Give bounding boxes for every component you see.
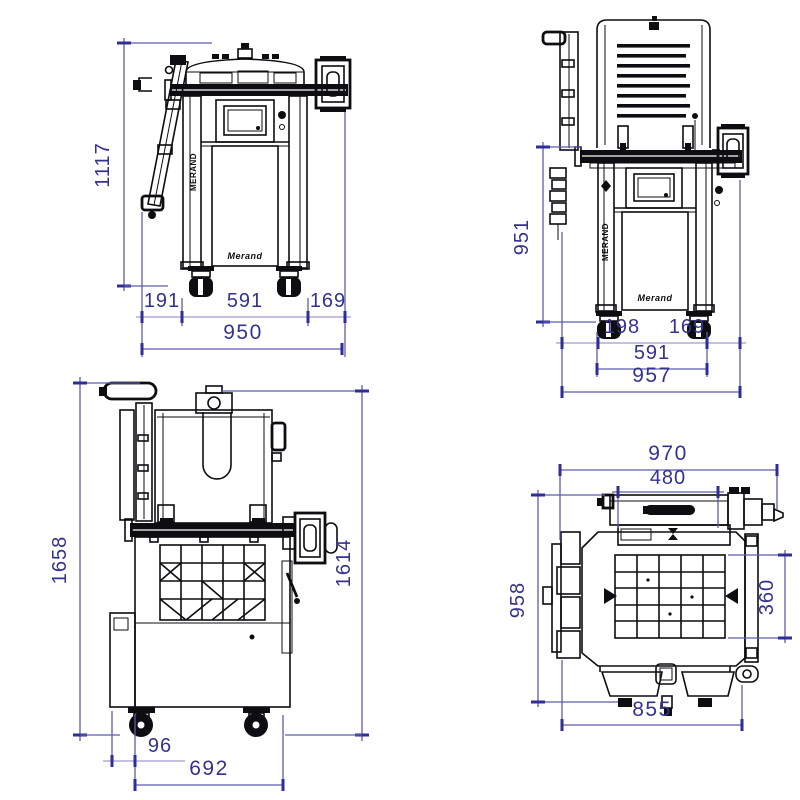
dim-label: 360 [756, 579, 778, 615]
motor-top [728, 487, 783, 529]
dim-label: 950 [223, 321, 263, 344]
hood-bar-top [618, 525, 730, 545]
dim-label: 591 [227, 290, 263, 312]
mast [99, 383, 156, 521]
top-view: 970 480 958 360 [440, 420, 800, 760]
right-pillar [289, 96, 307, 268]
front-view-open: Merand MERAND [400, 0, 800, 400]
dim-label: 480 [650, 467, 686, 489]
lever-arm [133, 55, 188, 219]
dim-label: 169 [669, 316, 705, 338]
front-view-closed: Merand MERAND [0, 0, 400, 365]
body-top [582, 532, 758, 666]
machine-top [543, 487, 783, 716]
dim-label: 1614 [333, 539, 355, 588]
dim-label: 958 [507, 582, 529, 618]
door-logo: Merand [227, 251, 262, 261]
dim-crossbar-width: 480 [612, 467, 724, 528]
dim-label: 951 [511, 219, 533, 255]
dim-label: 198 [604, 316, 640, 338]
side-view-open: 1658 1614 96 692 [0, 365, 400, 800]
dim-label: 970 [648, 442, 688, 465]
door [212, 146, 278, 266]
crossbar-top [597, 495, 728, 525]
divider-grid [615, 555, 725, 638]
caster-rear [243, 707, 270, 737]
dim-overall-height-open: 1658 [49, 377, 140, 741]
dim-label: 169 [310, 290, 346, 312]
caster-left [188, 266, 214, 297]
machine-side [99, 383, 337, 737]
front-panel [110, 613, 135, 707]
dim-label: 591 [634, 342, 670, 364]
hood-latch [649, 22, 659, 30]
dim-label: 957 [632, 364, 672, 387]
control-panel [216, 100, 274, 142]
technical-drawing-sheet: Merand MERAND [0, 0, 800, 800]
truss-grid [160, 545, 265, 620]
dim-label: 692 [189, 757, 229, 780]
hood-side [155, 386, 285, 523]
dim-label: 191 [144, 290, 180, 312]
handle [104, 383, 156, 399]
pillar-mark [601, 180, 611, 192]
side-motor-box [283, 513, 337, 563]
body [110, 537, 300, 707]
hood-knob [238, 49, 252, 58]
dim-label: 855 [632, 698, 672, 721]
dim-label: 1117 [92, 142, 114, 188]
dim-working-height: 951 [511, 142, 596, 327]
door-handle [250, 635, 255, 640]
lever-arm-folded [543, 32, 578, 240]
caster-front [128, 707, 155, 737]
lever-rack [550, 168, 566, 240]
caster-top [736, 666, 758, 682]
caster-right [276, 266, 302, 297]
body: Merand MERAND [181, 96, 309, 269]
latch-icon [668, 528, 678, 534]
side-knob [715, 186, 723, 194]
pillar-brand-label: MERAND [601, 223, 610, 261]
right-pillar [696, 163, 712, 311]
mast-top [543, 532, 580, 658]
side-knob [278, 111, 286, 119]
dim-label: 1658 [49, 536, 71, 585]
dim-label: 96 [148, 735, 172, 757]
body: Merand MERAND [596, 163, 723, 312]
machine-front-open: Merand MERAND [543, 16, 748, 339]
clamp-right [725, 588, 738, 604]
vent-slats [617, 44, 690, 118]
machine-front-closed: Merand MERAND [133, 43, 350, 297]
door-logo: Merand [637, 293, 672, 303]
handle-grip [645, 505, 695, 515]
control-panel [626, 168, 682, 208]
hood-stop [272, 423, 285, 450]
pillar-brand-label: MERAND [189, 153, 198, 191]
hood-slot [203, 412, 231, 479]
base-top [600, 664, 758, 716]
dim-bottom-row: 191 591 169 950 [136, 112, 351, 357]
hood [186, 43, 304, 84]
hood-open [597, 16, 710, 150]
